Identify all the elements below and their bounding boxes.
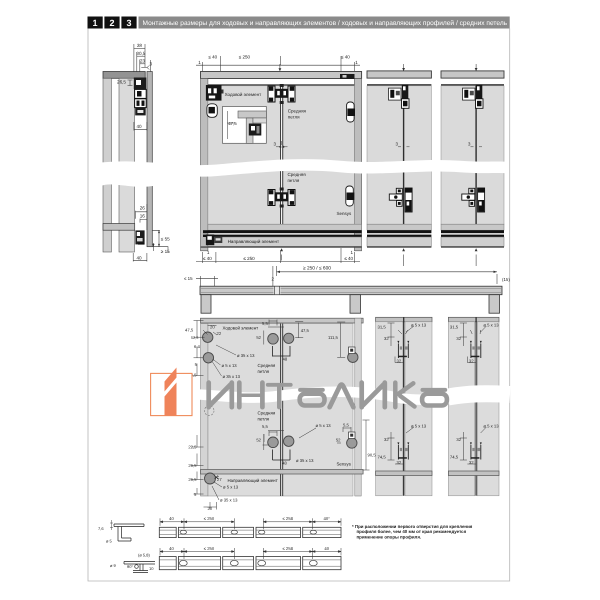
svg-text:ø 5 x 13: ø 5 x 13 xyxy=(222,363,238,368)
svg-text:111,5: 111,5 xyxy=(328,335,339,340)
svg-text:≤ 55: ≤ 55 xyxy=(161,236,170,241)
svg-text:петля: петля xyxy=(288,115,300,120)
svg-text:ø 5: ø 5 xyxy=(106,539,113,544)
svg-text:26,5: 26,5 xyxy=(188,463,197,468)
svg-text:31,5: 31,5 xyxy=(378,325,387,330)
svg-text:90,5: 90,5 xyxy=(368,453,377,458)
svg-text:26,5: 26,5 xyxy=(117,80,126,85)
svg-text:52: 52 xyxy=(256,438,261,443)
svg-text:ø 35 x 13: ø 35 x 13 xyxy=(237,353,255,358)
svg-text:23: 23 xyxy=(140,58,146,63)
svg-text:47,5: 47,5 xyxy=(301,328,310,333)
svg-text:≤ 250: ≤ 250 xyxy=(239,55,251,60)
svg-text:5,5: 5,5 xyxy=(343,423,349,428)
svg-text:ø 5 x 13: ø 5 x 13 xyxy=(316,423,332,428)
svg-text:ø 35 x 13: ø 35 x 13 xyxy=(220,498,238,503)
svg-text:31,5: 31,5 xyxy=(450,325,459,330)
svg-text:6,4: 6,4 xyxy=(194,344,200,349)
svg-text:48: 48 xyxy=(283,357,288,362)
svg-text:Средняя: Средняя xyxy=(258,363,276,368)
svg-text:48: 48 xyxy=(282,461,287,466)
svg-text:52,5: 52,5 xyxy=(191,336,198,340)
svg-text:5,5: 5,5 xyxy=(262,424,268,429)
svg-text:Sensys: Sensys xyxy=(337,211,353,216)
svg-text:32: 32 xyxy=(456,336,461,341)
svg-text:22: 22 xyxy=(217,331,222,336)
svg-text:≤ 40: ≤ 40 xyxy=(203,256,212,261)
svg-text:ø 9: ø 9 xyxy=(110,563,117,568)
svg-text:38: 38 xyxy=(137,43,143,48)
svg-text:≤ 250: ≤ 250 xyxy=(204,516,215,521)
svg-text:≤ 258: ≤ 258 xyxy=(282,516,293,521)
svg-text:22,5: 22,5 xyxy=(188,445,197,450)
svg-text:≤ 250: ≤ 250 xyxy=(204,546,215,551)
svg-text:40: 40 xyxy=(324,546,329,551)
svg-text:≤ 40: ≤ 40 xyxy=(208,55,217,60)
svg-text:2: 2 xyxy=(109,18,114,28)
svg-text:1: 1 xyxy=(92,18,97,28)
svg-text:27: 27 xyxy=(217,477,222,482)
svg-text:ø 35 x 13: ø 35 x 13 xyxy=(296,458,314,463)
svg-text:20: 20 xyxy=(208,506,213,511)
svg-text:30,5: 30,5 xyxy=(136,51,145,56)
svg-text:ø 5 x 13: ø 5 x 13 xyxy=(223,485,239,490)
svg-text:Средняя: Средняя xyxy=(288,109,307,114)
svg-text:(15): (15) xyxy=(502,277,510,282)
svg-text:40°: 40° xyxy=(324,516,331,521)
svg-text:≤ 250: ≤ 250 xyxy=(243,256,255,261)
svg-text:26: 26 xyxy=(140,206,146,211)
svg-text:ø 5 x 13: ø 5 x 13 xyxy=(483,424,499,429)
svg-text:40: 40 xyxy=(169,516,174,521)
svg-text:52: 52 xyxy=(336,438,341,443)
svg-text:Sensys: Sensys xyxy=(337,462,352,467)
svg-text:Ходовой элемент: Ходовой элемент xyxy=(223,326,259,331)
svg-text:Направляющий элемент: Направляющий элемент xyxy=(228,478,278,483)
svg-text:16: 16 xyxy=(140,213,146,218)
svg-text:≤ 40: ≤ 40 xyxy=(344,256,353,261)
svg-text:90°: 90° xyxy=(127,564,133,569)
svg-text:петля: петля xyxy=(258,369,270,374)
svg-text:Средняя: Средняя xyxy=(288,172,307,177)
svg-text:≤ 40: ≤ 40 xyxy=(341,55,350,60)
svg-text:применение опоры профиля.: применение опоры профиля. xyxy=(357,534,422,539)
svg-text:40: 40 xyxy=(136,256,142,261)
svg-text:≤ 258: ≤ 258 xyxy=(282,546,293,551)
svg-text:ø 5 x 13: ø 5 x 13 xyxy=(411,323,427,328)
svg-text:52: 52 xyxy=(256,335,261,340)
svg-text:32: 32 xyxy=(384,336,389,341)
svg-text:32: 32 xyxy=(469,359,474,364)
svg-text:32: 32 xyxy=(469,460,474,465)
svg-text:40: 40 xyxy=(136,124,142,129)
svg-text:74,5: 74,5 xyxy=(450,455,459,460)
svg-text:3: 3 xyxy=(150,62,153,67)
svg-text:7,6: 7,6 xyxy=(98,526,104,531)
svg-text:ø 5 x 13: ø 5 x 13 xyxy=(411,424,427,429)
svg-text:≥ 250 / ≤ 600: ≥ 250 / ≤ 600 xyxy=(303,265,331,271)
svg-text:петля: петля xyxy=(288,178,300,183)
svg-text:ø 35 x 13: ø 35 x 13 xyxy=(223,374,241,379)
svg-text:≤ 15: ≤ 15 xyxy=(184,276,193,281)
svg-text:40: 40 xyxy=(169,546,174,551)
svg-text:47,5: 47,5 xyxy=(228,121,237,126)
svg-text:петля: петля xyxy=(258,417,270,422)
svg-text:(ø 5,8): (ø 5,8) xyxy=(138,553,150,558)
svg-text:26,5: 26,5 xyxy=(188,477,197,482)
svg-text:Средняя: Средняя xyxy=(258,411,276,416)
svg-text:32: 32 xyxy=(397,359,402,364)
svg-text:Монтажные размеры для ходовых: Монтажные размеры для ходовых и направля… xyxy=(143,20,508,27)
svg-text:20: 20 xyxy=(210,324,215,329)
svg-text:32: 32 xyxy=(456,437,461,442)
svg-text:Ходовой элемент: Ходовой элемент xyxy=(225,92,262,97)
svg-text:32: 32 xyxy=(384,437,389,442)
svg-text:≥ 15: ≥ 15 xyxy=(161,249,170,254)
svg-text:5,5: 5,5 xyxy=(262,321,268,326)
svg-text:32: 32 xyxy=(397,460,402,465)
svg-text:Направляющий элемент: Направляющий элемент xyxy=(228,239,279,244)
svg-text:3: 3 xyxy=(126,18,131,28)
svg-text:ø 5 x 13: ø 5 x 13 xyxy=(483,323,499,328)
svg-text:10: 10 xyxy=(149,566,154,571)
svg-text:74,5: 74,5 xyxy=(378,455,387,460)
svg-text:47,5: 47,5 xyxy=(185,328,194,333)
